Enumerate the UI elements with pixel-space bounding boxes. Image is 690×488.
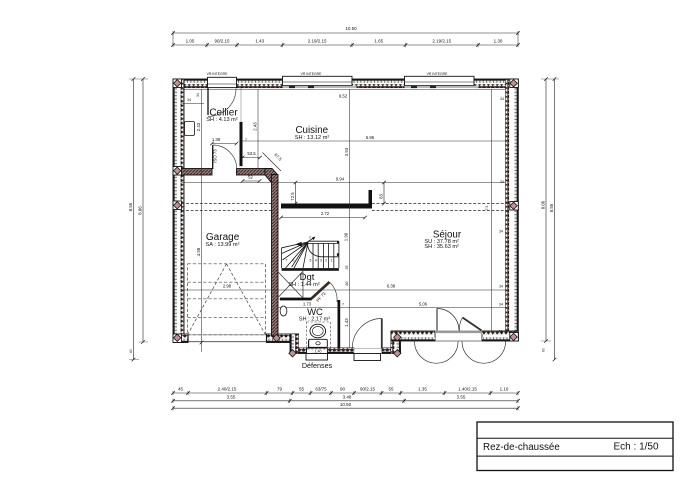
svg-text:1.90: 1.90 [344,232,349,241]
svg-text:2.19/2.15: 2.19/2.15 [432,39,451,44]
svg-text:35: 35 [345,266,349,270]
svg-text:3.48: 3.48 [343,395,352,400]
svg-text:53.5: 53.5 [247,151,256,156]
svg-text:8.06: 8.06 [541,200,546,209]
svg-text:SH : 35.63 m²: SH : 35.63 m² [424,244,459,250]
svg-text:55: 55 [388,387,394,392]
svg-text:52: 52 [248,175,253,180]
svg-text:Défenses: Défenses [302,361,333,370]
svg-text:90/2.15: 90/2.15 [214,39,230,44]
svg-text:4.98: 4.98 [196,247,201,256]
svg-text:7.5: 7.5 [485,206,489,211]
svg-text:72.5: 72.5 [290,192,295,201]
svg-text:9.52: 9.52 [339,94,348,99]
svg-text:5.06: 5.06 [419,301,428,306]
svg-text:34: 34 [499,302,503,306]
svg-text:7: 7 [342,303,344,307]
svg-text:79: 79 [277,387,283,392]
svg-text:2.19/2.15: 2.19/2.15 [308,39,327,44]
svg-text:34: 34 [196,93,200,97]
svg-text:SH : 13.12 m²: SH : 13.12 m² [295,135,330,141]
svg-text:1.39: 1.39 [212,137,221,142]
svg-text:63: 63 [379,194,384,199]
svg-text:34: 34 [499,285,503,289]
svg-text:VR INTEGRE: VR INTEGRE [427,72,448,76]
svg-text:1: 1 [330,259,332,263]
svg-text:1.40/2.15: 1.40/2.15 [458,387,477,392]
svg-text:1.30: 1.30 [494,39,503,44]
svg-text:34: 34 [500,180,504,184]
svg-text:SH : 2.17 m²: SH : 2.17 m² [299,317,331,323]
svg-text:SH : 4.13 m²: SH : 4.13 m² [206,117,238,123]
svg-text:3.55: 3.55 [227,395,236,400]
svg-text:5: 5 [310,259,312,263]
svg-text:2: 2 [309,236,311,240]
svg-text:3: 3 [320,259,322,263]
svg-text:Rez-de-chaussée: Rez-de-chaussée [483,442,560,453]
svg-text:60: 60 [542,348,546,352]
svg-text:34: 34 [187,98,191,102]
svg-text:2.40/2.15: 2.40/2.15 [218,387,237,392]
svg-text:SH : 1.44 m²: SH : 1.44 m² [288,282,320,288]
svg-text:9.94: 9.94 [336,176,345,181]
svg-text:5.95: 5.95 [366,135,375,140]
svg-text:6: 6 [293,259,295,263]
svg-text:8.55: 8.55 [128,202,133,211]
svg-text:8.06: 8.06 [138,206,143,215]
svg-text:2.43: 2.43 [253,122,258,131]
svg-text:1.73: 1.73 [303,301,312,306]
svg-text:1.65: 1.65 [374,39,383,44]
svg-text:7: 7 [286,259,288,263]
svg-text:34: 34 [500,97,504,101]
svg-text:6.38: 6.38 [387,284,396,289]
svg-text:3.93: 3.93 [344,147,349,156]
svg-text:ISO 73: ISO 73 [213,149,218,163]
svg-text:63/75: 63/75 [315,387,327,392]
svg-text:2.72: 2.72 [321,211,330,216]
svg-text:10.50: 10.50 [345,26,357,31]
svg-text:SA : 13.99 m²: SA : 13.99 m² [206,242,240,248]
svg-text:90: 90 [340,387,346,392]
svg-text:8.55: 8.55 [549,203,554,212]
svg-text:1.35: 1.35 [418,387,427,392]
svg-text:55: 55 [299,387,305,392]
svg-text:3.55: 3.55 [457,395,466,400]
svg-text:VR INTEGRE: VR INTEGRE [301,72,322,76]
svg-text:1.43: 1.43 [344,318,349,327]
svg-text:7: 7 [245,138,247,142]
svg-text:45: 45 [178,387,184,392]
svg-text:34: 34 [499,230,503,234]
svg-text:VR INTEGRE: VR INTEGRE [207,72,228,76]
svg-text:4: 4 [315,259,317,263]
svg-text:10.50: 10.50 [340,402,352,407]
svg-text:2.98: 2.98 [223,284,232,289]
svg-text:2: 2 [325,259,327,263]
svg-text:34: 34 [499,330,503,334]
svg-text:2.43: 2.43 [196,122,201,131]
svg-text:60: 60 [129,349,133,353]
svg-text:1.10: 1.10 [500,387,509,392]
svg-text:80: 80 [345,282,349,286]
svg-text:1.05: 1.05 [186,39,195,44]
svg-text:: 1.40: : 1.40 [313,350,322,354]
svg-text:Ech : 1/50: Ech : 1/50 [614,442,659,453]
svg-text:90/2.15: 90/2.15 [360,387,376,392]
svg-text:1.43: 1.43 [255,39,264,44]
